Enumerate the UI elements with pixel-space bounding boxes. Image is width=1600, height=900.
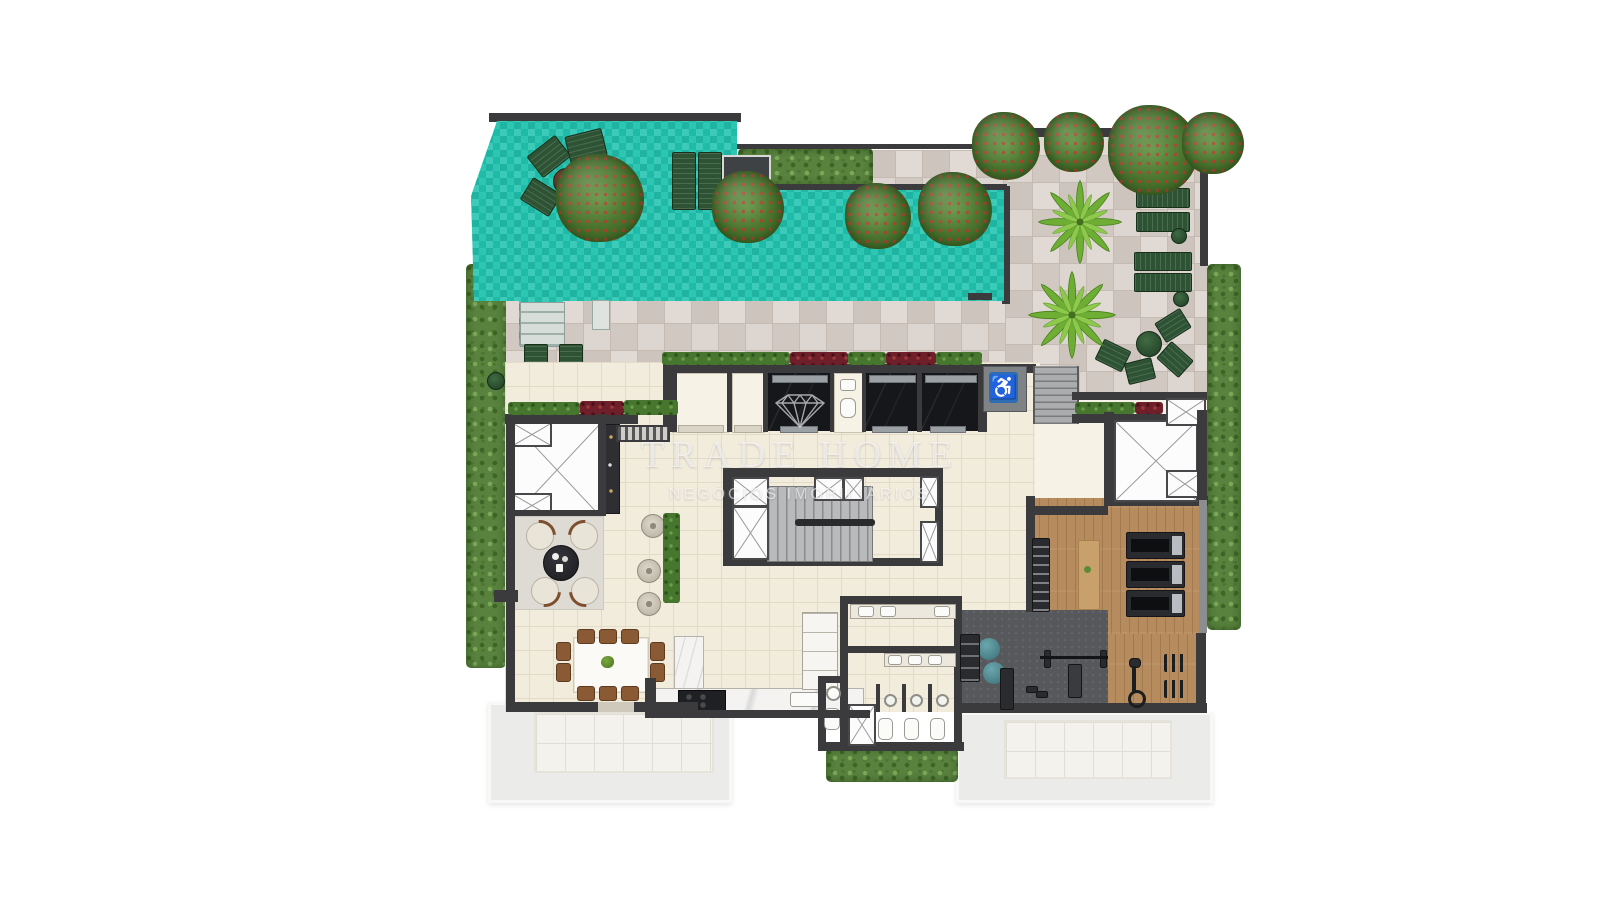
toilet: [840, 398, 856, 418]
hedge-bottom: [826, 748, 958, 782]
shower-head: [936, 694, 949, 707]
planter-green: [624, 400, 678, 415]
door-frame: [494, 590, 518, 602]
wall: [1196, 633, 1206, 709]
exercise-bike: [1164, 654, 1188, 672]
dumbbell-rack: [1032, 538, 1050, 612]
planter-green: [936, 352, 982, 365]
wall: [840, 646, 962, 653]
sink: [934, 606, 950, 617]
dining-chair: [599, 686, 617, 701]
planter-red: [580, 401, 624, 415]
core-wall: [723, 468, 943, 477]
garden-lounger: [1134, 273, 1192, 292]
shower-partition: [876, 684, 880, 712]
dining-chair: [599, 629, 617, 644]
wall: [645, 710, 870, 718]
core-wall: [723, 468, 732, 565]
wall: [1026, 506, 1108, 515]
wall: [1197, 410, 1207, 500]
pool-lap-marker: [968, 293, 992, 300]
duct-shaft: [920, 521, 939, 563]
sink: [888, 655, 902, 665]
bike-wheel: [1128, 690, 1146, 708]
gym-wood-floor: [1106, 634, 1205, 707]
wall: [840, 596, 848, 748]
duct-shaft: [732, 506, 769, 560]
wall: [598, 414, 606, 516]
shower-partition: [928, 684, 932, 712]
corner-sink: [826, 686, 841, 701]
planter-green: [662, 352, 790, 365]
stair-handrail: [795, 519, 875, 526]
planter-red: [790, 352, 848, 365]
treadmill: [1126, 532, 1185, 559]
bar-stool: [641, 514, 665, 538]
wall: [818, 742, 964, 751]
barbell-upright: [1100, 650, 1107, 668]
exercise-ball: [978, 638, 1000, 660]
garden-table: [1136, 331, 1162, 357]
elevator-door: [872, 426, 908, 433]
wall: [763, 372, 768, 432]
sink: [880, 606, 896, 617]
dining-chair: [650, 642, 665, 661]
treadmill-belt: [1131, 568, 1169, 581]
toilet: [904, 718, 919, 740]
duct-shaft: [814, 477, 844, 501]
vestibule-room: [672, 373, 729, 433]
toilet: [878, 718, 893, 740]
kitchen-sink: [790, 692, 820, 707]
hedge-right: [1207, 264, 1241, 630]
lower-terrace-left-tiles: [534, 712, 714, 773]
planter-green: [508, 402, 580, 415]
exercise-bike: [1164, 680, 1188, 698]
sink: [928, 655, 942, 665]
sink: [840, 379, 856, 391]
tree-canopy: [1182, 112, 1244, 174]
bar-stool: [637, 592, 661, 616]
treadmill-belt: [1131, 597, 1169, 610]
barbell-bar: [1040, 656, 1108, 659]
terrace-door-gap: [598, 702, 634, 712]
dining-chair: [556, 663, 571, 682]
palm-tree: [1026, 269, 1118, 361]
shower-head: [910, 694, 923, 707]
wall: [506, 510, 604, 516]
shower-partition: [902, 684, 906, 712]
exterior-wall-left: [506, 418, 515, 710]
wall: [668, 365, 677, 432]
garden-pouf: [1171, 228, 1187, 244]
table-setting: [562, 556, 568, 562]
treadmill-console: [1172, 536, 1182, 555]
duct-shaft: [920, 476, 939, 508]
treadmill: [1126, 590, 1185, 617]
wall: [818, 676, 848, 683]
gym-rubber-mat: [958, 610, 1108, 710]
pool-steps: [520, 302, 565, 347]
palm-tree: [1036, 178, 1124, 266]
in-pool-lounger: [672, 152, 696, 210]
diamond-icon: [770, 392, 830, 430]
sink: [908, 655, 922, 665]
planter-red: [886, 352, 936, 365]
workout-bench: [1068, 664, 1082, 698]
wall: [917, 372, 922, 432]
indoor-planter: [663, 513, 680, 603]
dining-chair: [621, 686, 639, 701]
lounge-table: [543, 545, 579, 581]
bar-stool: [637, 559, 661, 583]
treadmill: [1126, 561, 1185, 588]
sink: [858, 606, 874, 617]
dining-chair: [556, 642, 571, 661]
table-setting: [552, 553, 559, 560]
tree-canopy: [712, 171, 784, 243]
planter-green: [848, 352, 886, 365]
plant-pot: [1084, 566, 1091, 573]
tree-canopy: [918, 172, 992, 246]
wheelchair-icon: ♿: [989, 372, 1018, 403]
wall: [830, 372, 834, 432]
wall: [862, 372, 866, 432]
weight-stand: [1000, 668, 1014, 710]
glass-wall: [1199, 500, 1207, 633]
barbell-upright: [1044, 650, 1051, 668]
dumbbells: [1036, 691, 1048, 698]
bike-frame: [1132, 666, 1136, 692]
vestibule-door: [734, 425, 762, 433]
wall: [727, 372, 732, 432]
gym-bench-table: [1078, 540, 1100, 610]
garden-lounger: [1134, 252, 1192, 271]
garden-pouf: [1173, 291, 1189, 307]
treadmill-console: [1172, 565, 1182, 584]
lower-terrace-right-tiles: [1004, 720, 1172, 779]
tree-canopy: [1044, 112, 1104, 172]
wheelchair-glyph: ♿: [989, 376, 1018, 399]
weight-rack: [960, 634, 980, 682]
vestibule-room: [732, 373, 765, 433]
dining-chair: [577, 629, 595, 644]
grill-counter: [616, 425, 670, 442]
elevator-sill: [925, 375, 977, 383]
wall: [956, 703, 1207, 713]
spin-bike: [1126, 658, 1142, 704]
dining-chair: [621, 629, 639, 644]
planter-red: [1135, 402, 1163, 414]
tree-canopy: [845, 183, 911, 249]
table-centerpiece: [601, 656, 614, 668]
table-setting: [556, 564, 563, 572]
floor-plan-rendering: ♿: [0, 0, 1600, 900]
shower-head: [884, 694, 897, 707]
tree-canopy: [972, 112, 1040, 180]
tree-canopy: [556, 154, 644, 242]
vestibule-door: [678, 425, 724, 433]
toilet: [930, 718, 945, 740]
treadmill-console: [1172, 594, 1182, 613]
duct-shaft: [843, 477, 864, 501]
duct-shaft: [512, 422, 552, 447]
wall: [1104, 412, 1114, 504]
deck-side-table: [487, 372, 505, 390]
wall: [840, 596, 962, 604]
elevator-sill: [772, 375, 828, 383]
pool-ladder: [592, 300, 610, 330]
elevator-door: [930, 426, 966, 433]
elevator-sill: [869, 375, 916, 383]
dining-chair: [577, 686, 595, 701]
wall: [505, 414, 638, 424]
treadmill-belt: [1131, 539, 1169, 552]
duct-shaft: [732, 477, 769, 507]
